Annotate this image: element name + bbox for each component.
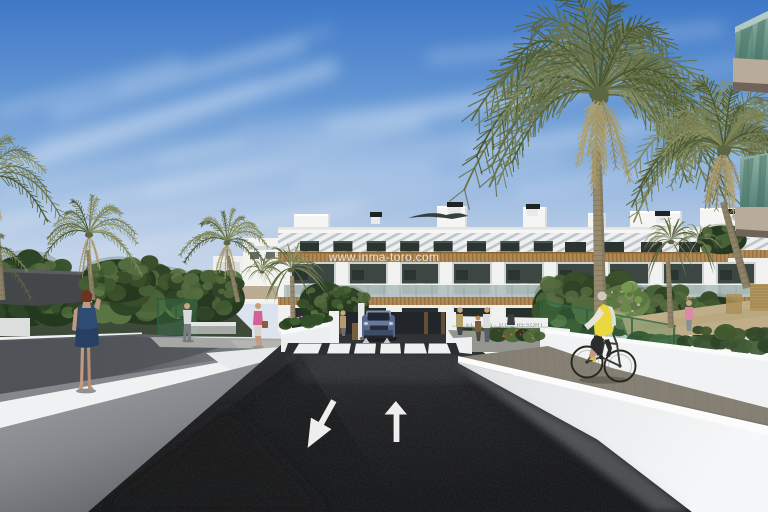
svg-text:www.inma-toro.com: www.inma-toro.com [328,250,439,264]
